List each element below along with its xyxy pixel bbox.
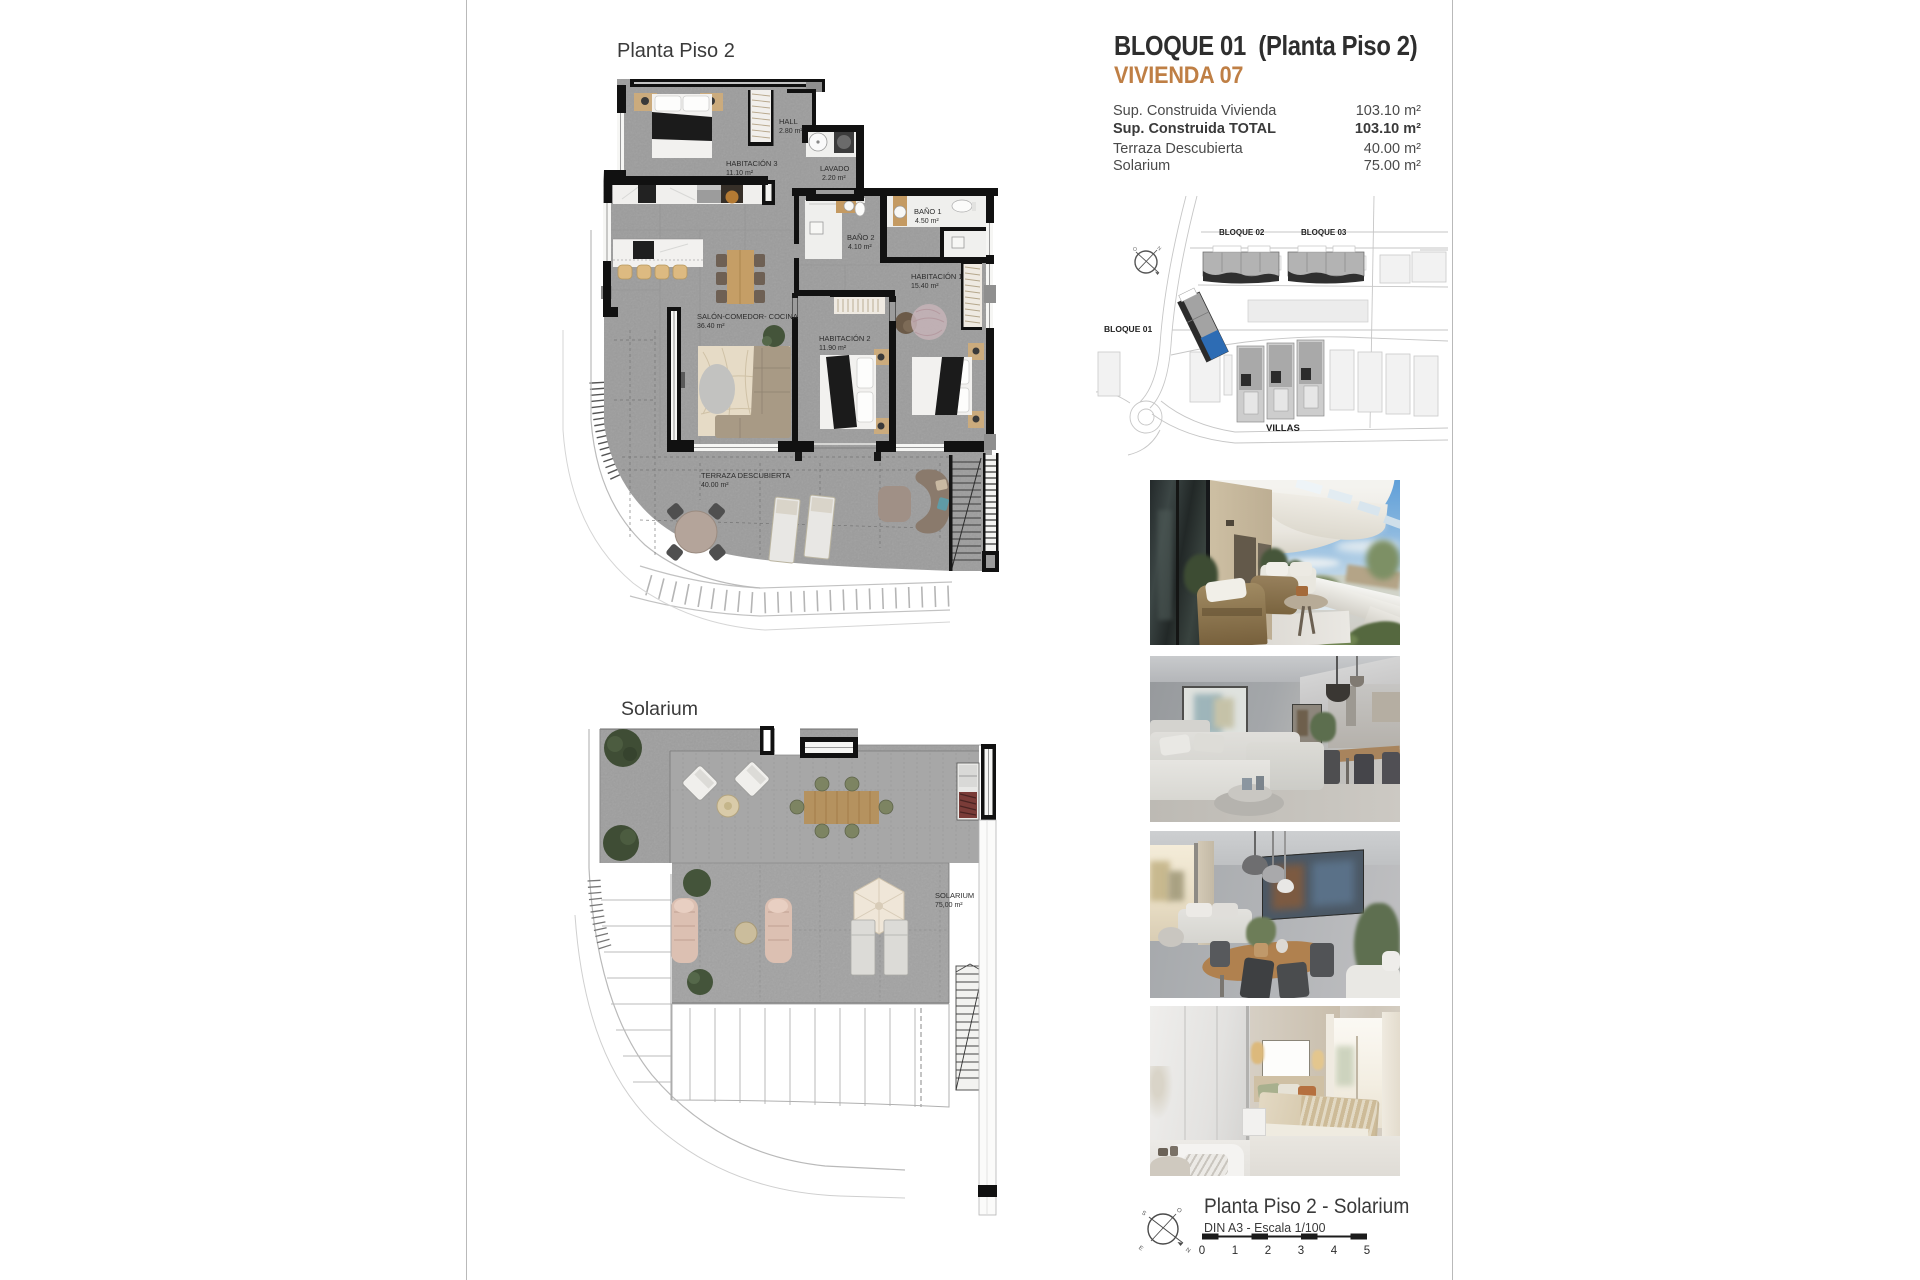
svg-text:HABITACIÓN 2: HABITACIÓN 2 (819, 334, 871, 343)
svg-text:4: 4 (1331, 1245, 1338, 1257)
svg-text:3: 3 (1298, 1245, 1304, 1257)
svg-text:15.40 m²: 15.40 m² (911, 283, 939, 290)
svg-text:HABITACIÓN 3: HABITACIÓN 3 (726, 159, 778, 168)
svg-text:BLOQUE 03: BLOQUE 03 (1301, 228, 1347, 237)
svg-text:TERRAZA DESCUBIERTA: TERRAZA DESCUBIERTA (701, 471, 790, 480)
svg-text:HABITACIÓN 1: HABITACIÓN 1 (911, 272, 963, 281)
svg-text:SOLARIUM: SOLARIUM (935, 891, 974, 900)
svg-text:2.20 m²: 2.20 m² (822, 175, 846, 182)
svg-text:5: 5 (1364, 1245, 1370, 1257)
svg-text:N: N (1184, 1247, 1191, 1254)
svg-text:E: E (1137, 1245, 1144, 1252)
svg-text:4.50 m²: 4.50 m² (915, 218, 939, 225)
svg-text:BAÑO 2: BAÑO 2 (847, 233, 875, 242)
svg-text:4.10 m²: 4.10 m² (848, 244, 872, 251)
svg-text:LAVADO: LAVADO (820, 164, 849, 173)
svg-text:N: N (1155, 245, 1162, 252)
svg-text:75,00 m²: 75,00 m² (935, 902, 963, 909)
svg-text:O: O (1133, 247, 1137, 253)
svg-text:VILLAS: VILLAS (1266, 423, 1300, 434)
svg-text:BLOQUE 02: BLOQUE 02 (1219, 228, 1265, 237)
svg-text:HALL: HALL (779, 117, 798, 126)
svg-text:36.40 m²: 36.40 m² (697, 323, 725, 330)
svg-text:2: 2 (1265, 1245, 1271, 1257)
svg-text:1: 1 (1232, 1245, 1238, 1257)
svg-text:BLOQUE 01: BLOQUE 01 (1104, 324, 1152, 334)
svg-text:S: S (1140, 1210, 1147, 1217)
svg-text:SALÓN-COMEDOR- COCINA: SALÓN-COMEDOR- COCINA (697, 312, 798, 321)
svg-text:2.80 m²: 2.80 m² (779, 128, 803, 135)
svg-text:0: 0 (1199, 1245, 1205, 1257)
svg-text:40.00 m²: 40.00 m² (701, 482, 729, 489)
svg-text:11.10 m²: 11.10 m² (726, 170, 754, 177)
svg-text:O: O (1175, 1207, 1183, 1215)
svg-text:11.90 m²: 11.90 m² (819, 345, 847, 352)
svg-text:BAÑO 1: BAÑO 1 (914, 207, 942, 216)
